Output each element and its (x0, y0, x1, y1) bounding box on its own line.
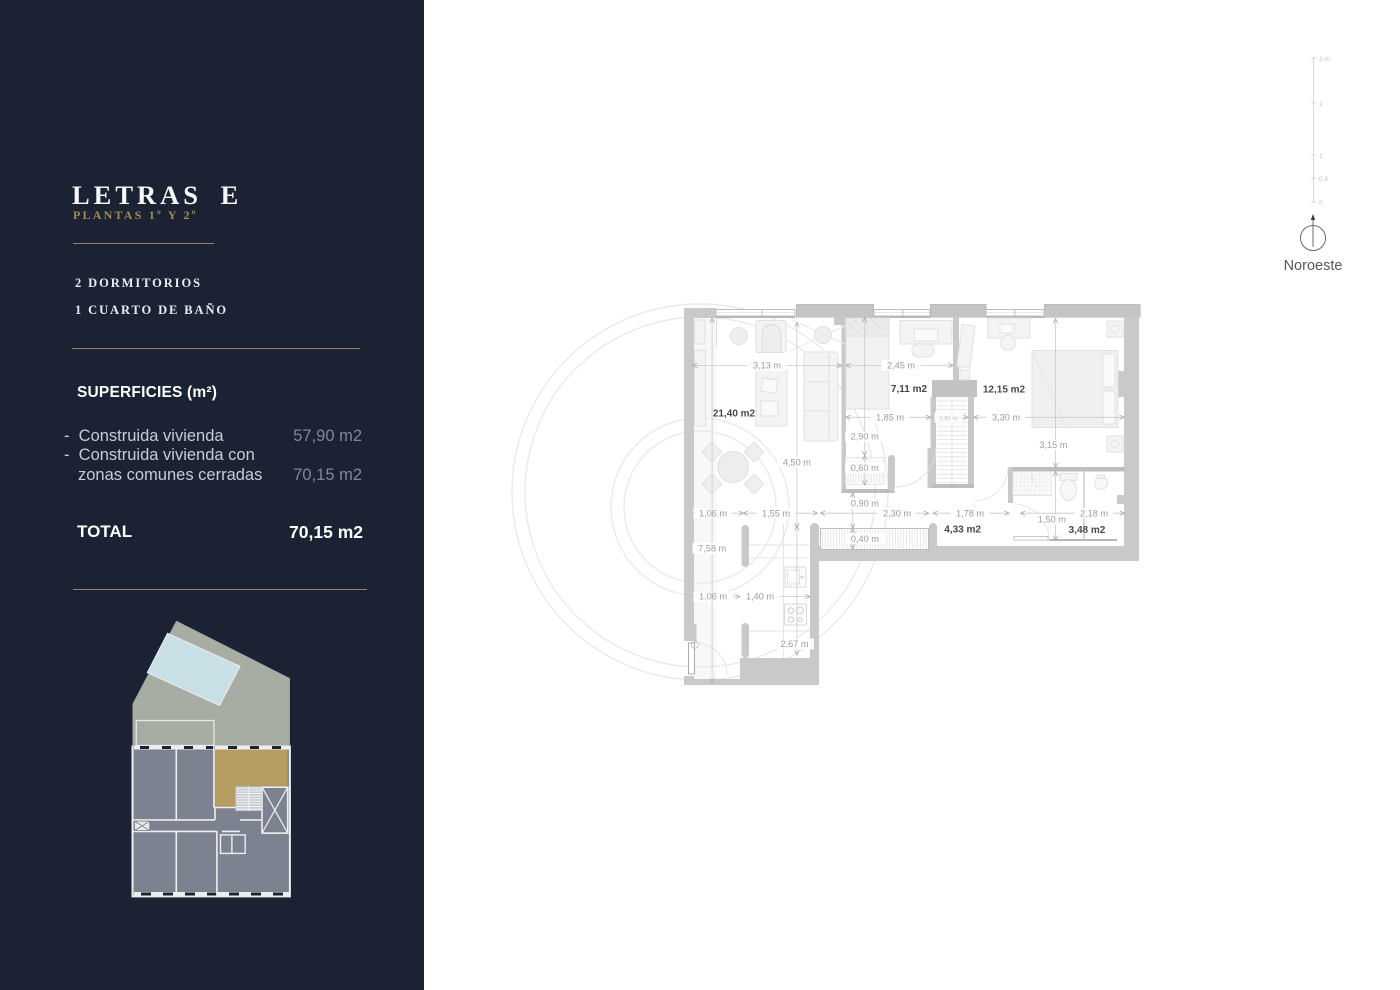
svg-text:7,58 m: 7,58 m (698, 543, 726, 553)
svg-text:7,11 m2: 7,11 m2 (891, 384, 928, 395)
svg-text:4,50 m: 4,50 m (783, 457, 811, 467)
svg-text:3,13 m: 3,13 m (753, 361, 781, 371)
svg-text:2,45 m: 2,45 m (887, 361, 915, 371)
svg-text:1,06 m: 1,06 m (699, 508, 727, 518)
svg-text:4,33 m2: 4,33 m2 (944, 525, 981, 536)
svg-text:0,60 m: 0,60 m (939, 416, 957, 422)
svg-text:2,18 m: 2,18 m (1080, 508, 1108, 518)
svg-text:0,90 m: 0,90 m (851, 498, 879, 508)
svg-text:0: 0 (1319, 200, 1323, 207)
svg-text:3,30 m: 3,30 m (992, 412, 1020, 422)
svg-text:2: 2 (1319, 101, 1323, 108)
svg-text:1: 1 (1319, 153, 1323, 160)
svg-text:1,55 m: 1,55 m (762, 508, 790, 518)
svg-text:3,15 m: 3,15 m (1039, 440, 1067, 450)
svg-text:1,40 m: 1,40 m (746, 592, 774, 602)
svg-text:1,50 m: 1,50 m (1038, 515, 1066, 525)
svg-text:0.5: 0.5 (1319, 176, 1328, 183)
svg-text:12,15 m2: 12,15 m2 (983, 385, 1026, 396)
svg-text:2,67 m: 2,67 m (780, 639, 808, 649)
svg-text:1,85 m: 1,85 m (876, 412, 904, 422)
svg-text:3 m: 3 m (1319, 56, 1330, 63)
svg-text:2,30 m: 2,30 m (883, 508, 911, 518)
svg-text:21,40 m2: 21,40 m2 (713, 409, 756, 420)
svg-text:0,60 m: 0,60 m (851, 463, 879, 473)
svg-text:0,40 m: 0,40 m (851, 534, 879, 544)
svg-text:1,78 m: 1,78 m (956, 508, 984, 518)
svg-text:2,90 m: 2,90 m (851, 432, 879, 442)
svg-text:1,06 m: 1,06 m (699, 592, 727, 602)
svg-text:3,48 m2: 3,48 m2 (1069, 525, 1106, 536)
svg-text:Noroeste: Noroeste (1284, 258, 1343, 274)
